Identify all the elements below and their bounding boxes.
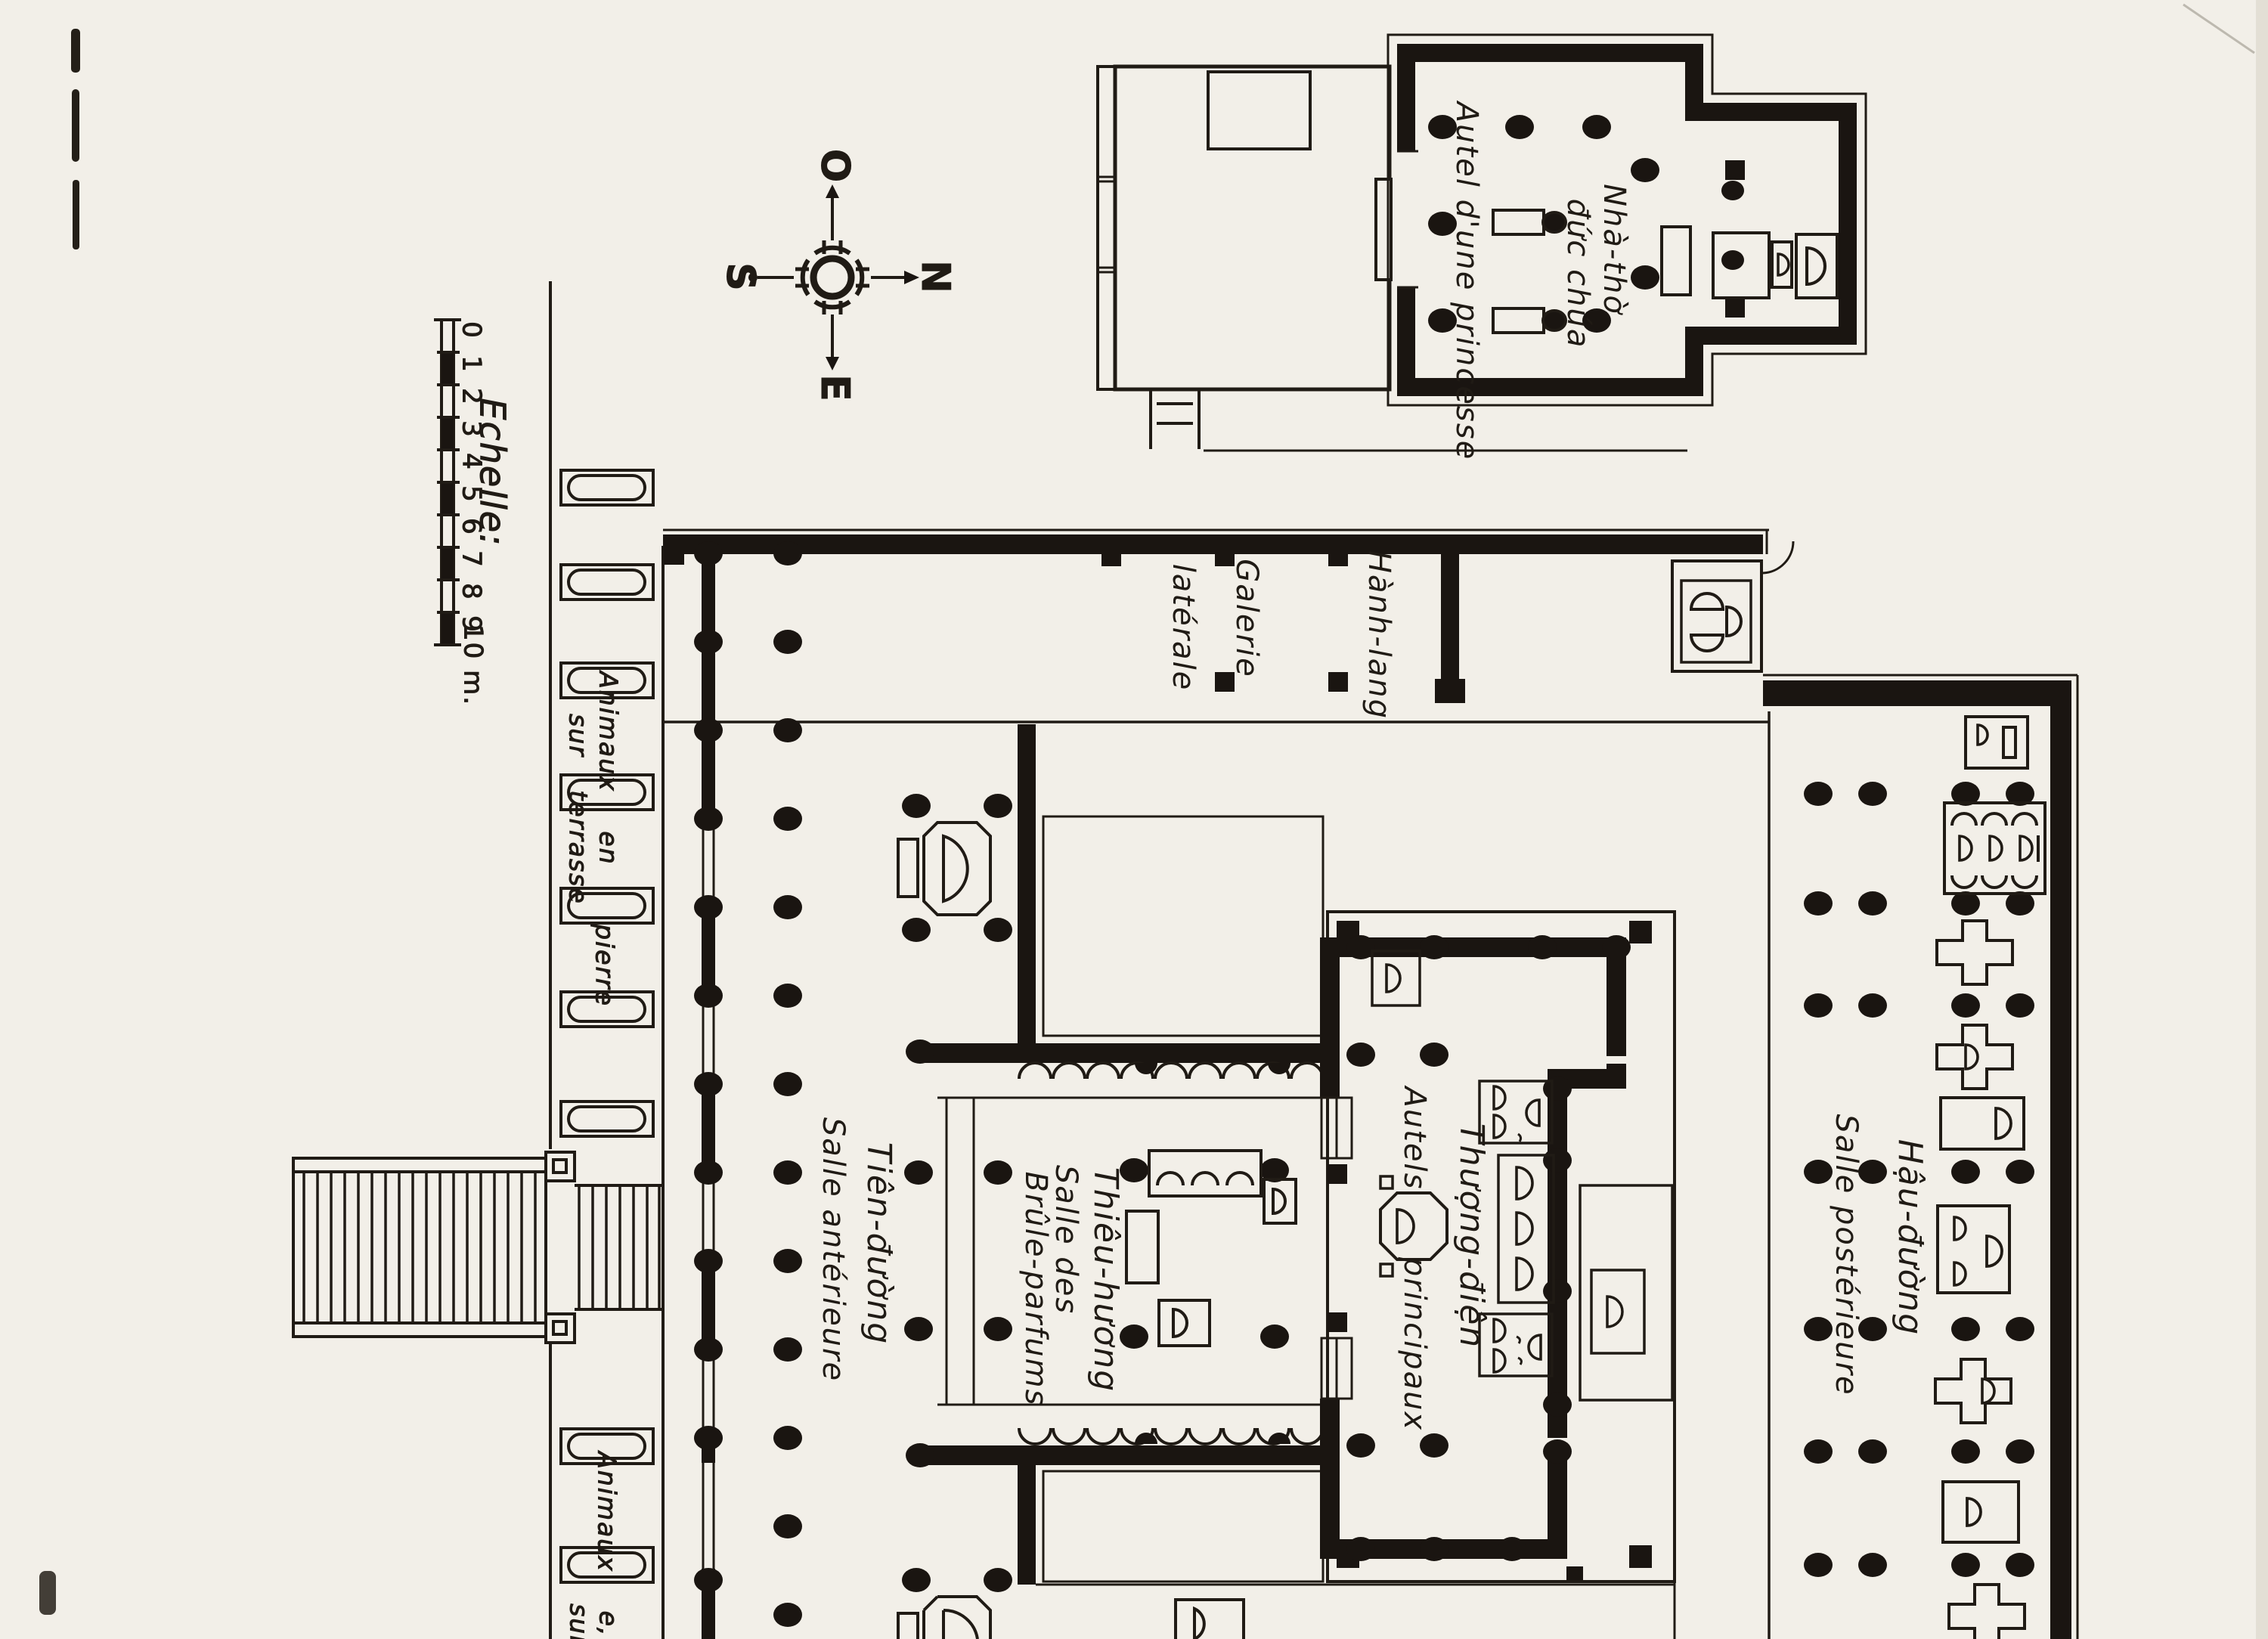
scan-edge-shadow [2256,0,2268,1639]
rear-hall-label-vietnamese: Hậu-đường [1891,1139,1929,1336]
scale-tick-label: 0 [457,321,487,339]
scale-tick-label: 8 [457,583,487,601]
incense-hall-label-french-2: Brûle-parfums [1018,1172,1053,1407]
terrace-label-en: en [594,831,624,865]
incense-hall-label-vietnamese: Thiêu-hương [1086,1167,1125,1393]
front-hall-label-french: Salle antérieure [816,1117,850,1382]
terrace-bottom-label-sur: sur [565,1603,594,1639]
scanned-plan-page: 0 1 2 3 4 5 6 7 8 9 10 m. Echelle: O S N… [0,0,2268,1639]
east-wall [2050,680,2071,1639]
sanctuary-label-vietnamese: Thượng-điện [1452,1123,1491,1349]
scale-tick-label: 7 [457,550,487,569]
shrine-west-door [1394,151,1418,287]
compass-south-label: S [717,262,763,292]
scale-title: Echelle: [472,398,513,547]
front-hall-label-vietnamese: Tiên-đường [860,1142,898,1346]
terrace-label-animaux: Animaux [594,670,624,792]
gallery-north-wall [663,534,1763,554]
terrace-label-pierre: pierre [590,923,620,1007]
scale-end-label: 10 m. [458,624,488,706]
rear-hall-label-french: Salle postérieure [1829,1114,1864,1396]
terrace-bottom-label-animaux: Animaux [593,1450,622,1572]
compass-north-label: N [912,260,958,295]
terrace-bottom-label-partial: e, [594,1611,624,1637]
sanctuary-label-french-1: Autels [1397,1085,1432,1191]
terrace-label-terrasse: terrasse [564,790,593,904]
north-court-west-wall [1018,724,1036,1061]
south-court-west-wall [1018,1445,1036,1585]
south-court-north-wall [920,1445,1323,1465]
paper-background [0,0,2268,1639]
north-court-south-wall [920,1043,1323,1063]
gallery-label-french-1: Galerie [1229,559,1264,677]
floor-plan-drawing: 0 1 2 3 4 5 6 7 8 9 10 m. Echelle: O S N… [0,0,2268,1639]
shrine-label-vietnamese-1: Nhà-thờ [1597,184,1631,315]
scale-tick-label: 1 [457,355,487,373]
compass-east-label: E [812,374,857,403]
terrace-label-sur: sur [564,714,593,758]
gallery-label-vietnamese: Hành-lang [1362,550,1396,720]
compass-west-label: O [812,149,857,184]
shrine-label-vietnamese-2: đức chúa [1560,199,1595,349]
sanctuary-label-french-2: principaux [1397,1256,1432,1431]
shrine-label-french: Autel d'une princesse [1449,100,1484,460]
northeast-wall [1763,680,2052,706]
gallery-label-french-2: latérale [1166,564,1201,692]
gallery-partition-wall [1441,554,1459,681]
